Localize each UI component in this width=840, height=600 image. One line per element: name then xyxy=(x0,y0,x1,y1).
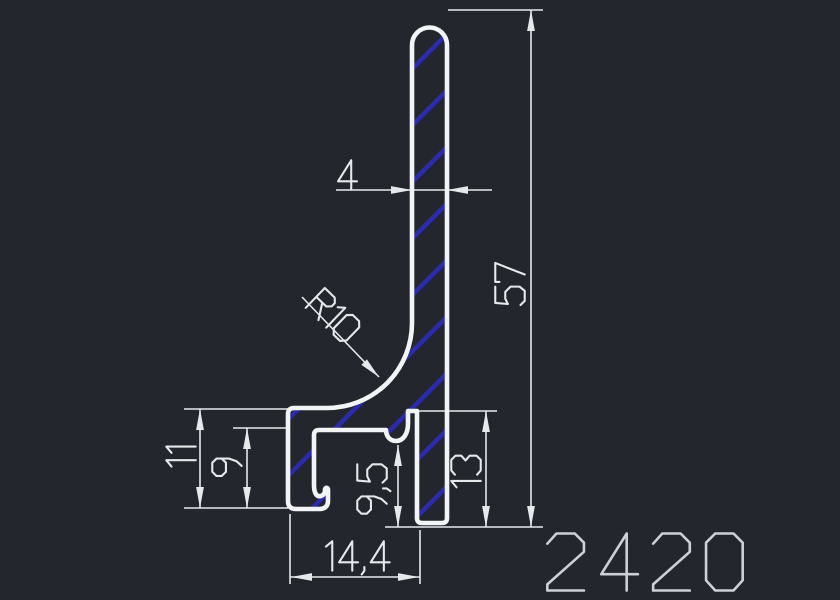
cad-viewport xyxy=(0,0,840,600)
cad-drawing-canvas xyxy=(0,0,840,600)
